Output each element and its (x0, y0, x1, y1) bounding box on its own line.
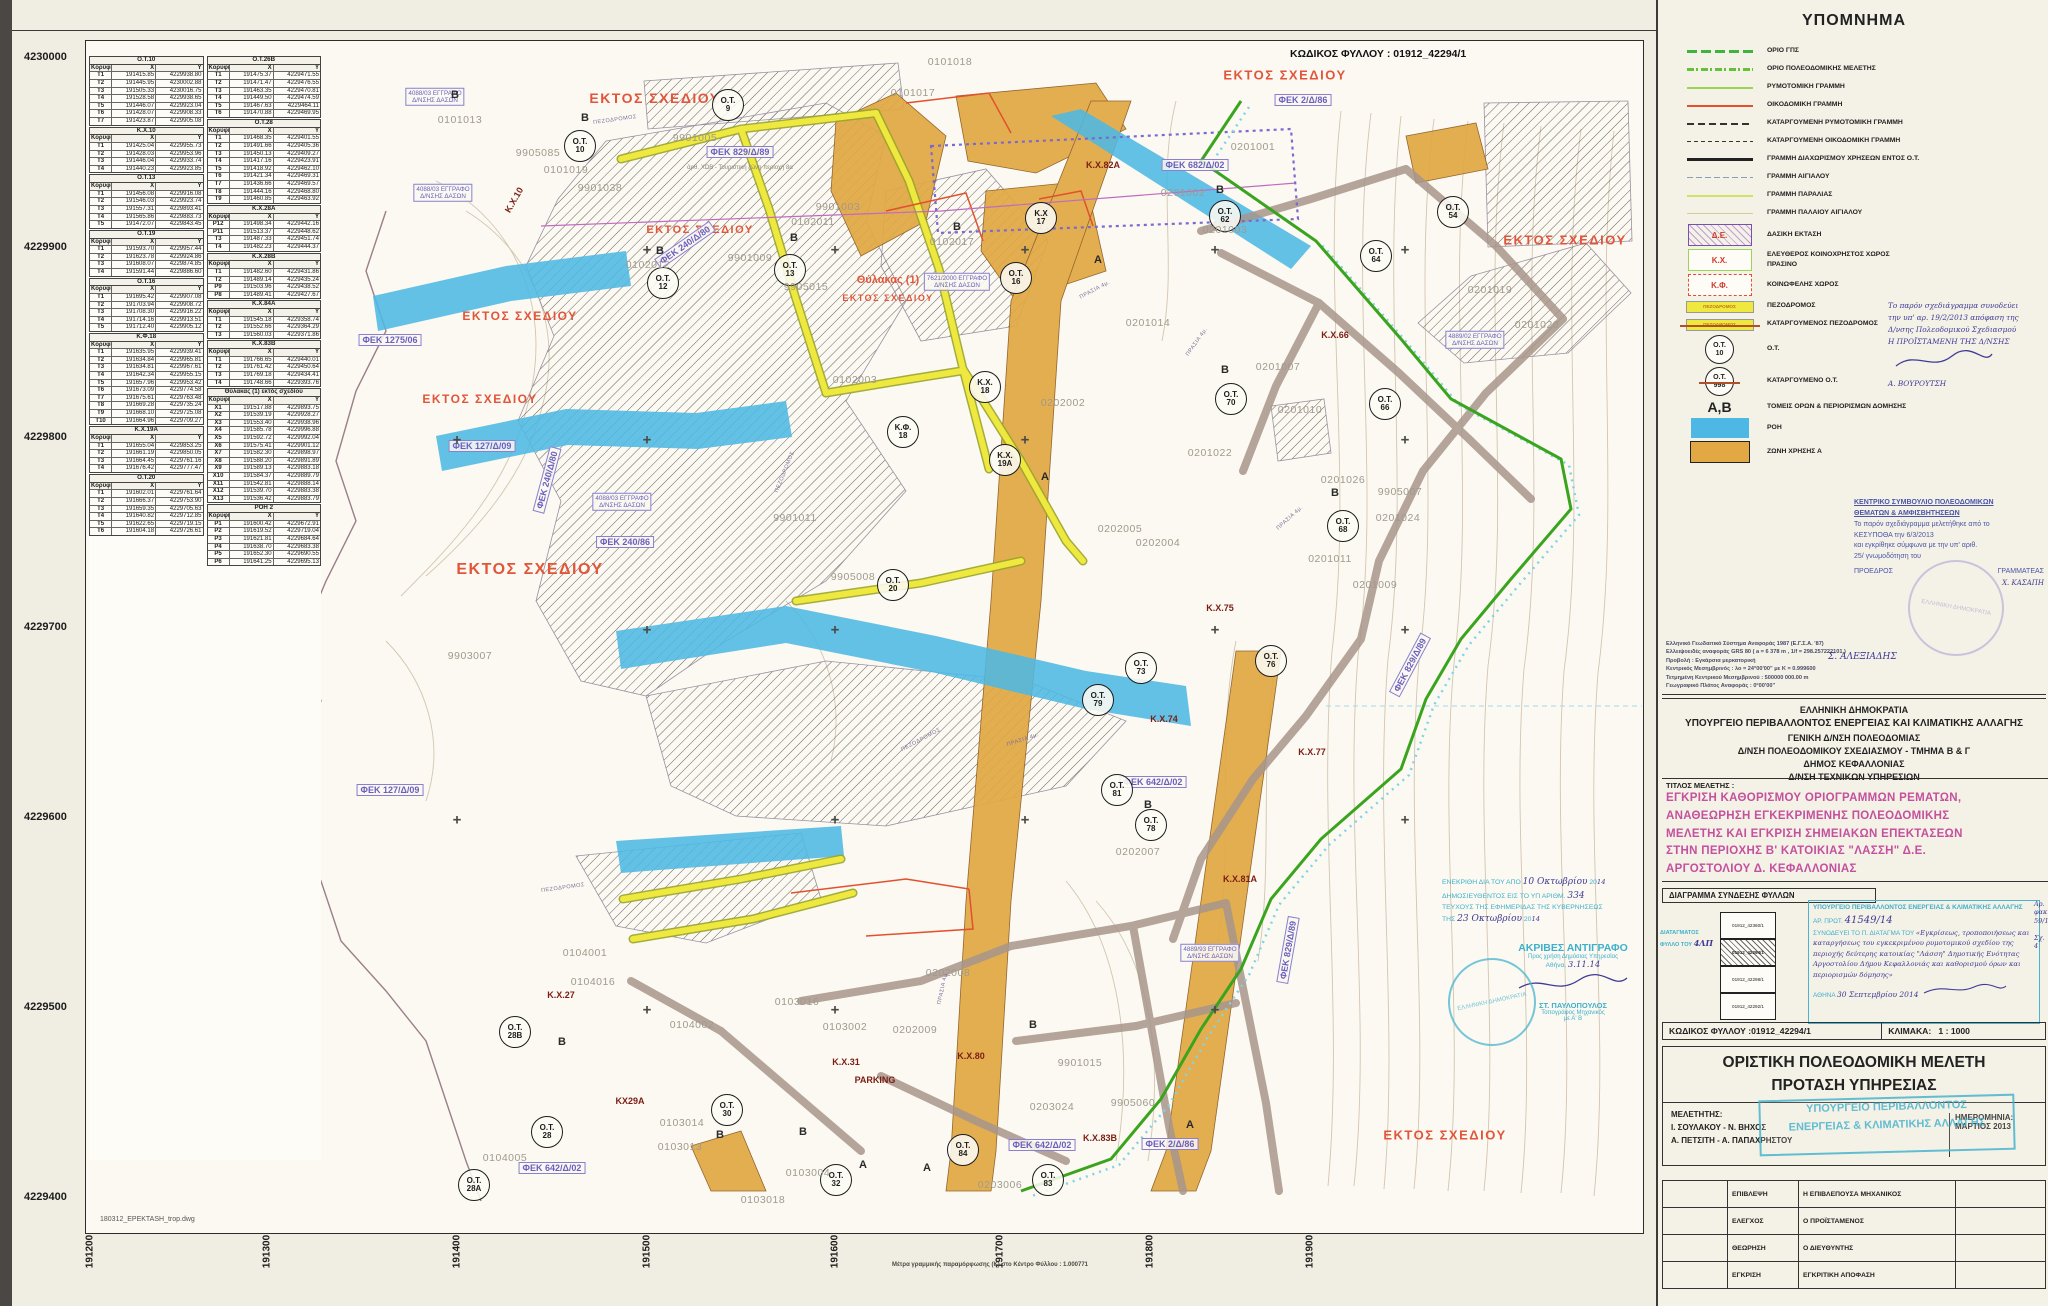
table-row: Χ12191539.704229883.38 (208, 488, 321, 496)
x-value: 191655.04 (112, 443, 156, 450)
table-group-title: Ο.Τ.16 (90, 279, 203, 287)
y-value: 4229908.33 (156, 110, 202, 117)
grid-cross: + (453, 812, 462, 829)
sheet-code-row: ΚΩΔΙΚΟΣ ΦΥΛΛΟΥ :01912_42294/1 ΚΛΙΜΑΚΑ: 1… (1662, 1022, 2046, 1040)
approval-signature-cell (1956, 1235, 2045, 1261)
col-vertex: Κορυφή (90, 135, 112, 142)
designers-label: ΜΕΛΕΤΗΤΗΣ: (1671, 1110, 1722, 1119)
table-row: Τ4191640.824229712.85 (90, 513, 203, 521)
table-header-row: ΚορυφήXY (208, 261, 321, 269)
y-value: 4229763.48 (156, 395, 202, 402)
block-number-badge: Ο.Τ.16 (1000, 262, 1032, 294)
vertex-id: Τ2 (208, 277, 230, 284)
grid-cross: + (1021, 432, 1030, 449)
legend-label: ΓΡΑΜΜΗ ΠΑΡΑΛΙΑΣ (1767, 190, 1832, 200)
divider-2 (1662, 698, 2046, 699)
fek-reference-label: ΦΕΚ 2/Δ/86 (1142, 1138, 1199, 1150)
legend-item: ΟΡΙΟ ΓΠΣ (1672, 44, 2042, 59)
y-value: 4229469.31 (274, 173, 320, 180)
x-value: 191664.96 (112, 418, 156, 425)
margin-notes: Αρ. φακ. 59/14 Σχ. 4 (2034, 900, 2048, 951)
scanned-planning-sheet: { "sheet": { "kodikos_top": "ΚΩΔΙΚΟΣ ΦΥΛ… (0, 0, 2048, 1306)
x-value: 191761.42 (230, 364, 274, 371)
col-y: Y (156, 183, 202, 190)
handwritten-note-directorate: Το παρόν σχεδιάγραμμα συνοδεύειτην υπ' α… (1888, 300, 2048, 390)
col-x: X (112, 183, 156, 190)
block-number: 17 (1037, 218, 1046, 226)
table-group-title: Ο.Τ.26Β (208, 57, 321, 65)
table-row: Τ2191445.954230002.88 (90, 80, 203, 88)
vertex-id: Τ5 (208, 103, 230, 110)
building-sector-letter: Α (859, 1159, 867, 1171)
agency-line: ΥΠΟΥΡΓΕΙΟ ΠΕΡΙΒΑΛΛΟΝΤΟΣ ΕΝΕΡΓΕΙΑΣ ΚΑΙ ΚΛ… (1662, 717, 2046, 732)
y-value: 4229409.27 (274, 151, 320, 158)
vertex-id: Τ10 (90, 418, 112, 425)
y-value: 4229924.86 (156, 254, 202, 261)
council-secretary: ΓΡΑΜΜΑΤΕΑΣ (1998, 567, 2044, 578)
y-value: 4229672.91 (274, 521, 320, 528)
vertex-id: Ρ5 (208, 551, 230, 558)
vertex-id: Τ1 (208, 357, 230, 364)
table-group-title: Κ.Χ.10 (90, 128, 203, 136)
x-value: 191468.35 (230, 135, 274, 142)
col-y: Y (274, 397, 320, 404)
y-value: 4229967.61 (156, 364, 202, 371)
table-group-title: Κ.Χ.19Α (90, 427, 203, 435)
table-row: Τ7191423.874229905.08 (90, 118, 203, 125)
col-x: X (112, 286, 156, 293)
parcel-number: 0201022 (1188, 447, 1232, 459)
map-label-ektos-sxediou: ΕΚΤΟΣ ΣΧΕΔΙΟΥ (842, 293, 933, 303)
study-title-line: ΑΝΑΘΕΩΡΗΣΗ ΕΓΚΕΚΡΙΜΕΝΗΣ ΠΟΛΕΟΔΟΜΙΚΗΣ (1666, 808, 2048, 826)
x-value: 191748.66 (230, 380, 274, 387)
coordinate-table-group: Ο.Τ.26ΒΚορυφήXYΤ1191475.374229471.55Τ219… (207, 56, 322, 118)
x-value: 191604.18 (112, 528, 156, 535)
building-sector-letter: Α (1041, 471, 1049, 483)
block-number-badge: Ο.Τ.28Α (458, 1169, 490, 1201)
col-vertex: Κορυφή (208, 128, 230, 135)
sectors-ab-symbol: Α,Β (1707, 399, 1731, 415)
table-row: Τ2191489.144229435.24 (208, 277, 321, 285)
col-x: X (230, 309, 274, 316)
vertex-id: Τ2 (208, 324, 230, 331)
legend-swatch (1672, 141, 1767, 143)
stamp-hw-date: 30 Σεπτεμβρίου 2014 (1837, 990, 1918, 999)
x-value: 191708.30 (112, 309, 156, 316)
table-row: Τ4191482.234229444.37 (208, 244, 321, 251)
study-title-line: ΕΓΚΡΙΣΗ ΚΑΘΟΡΙΣΜΟΥ ΟΡΙΟΓΡΑΜΜΩΝ ΡΕΜΑΤΩΝ, (1666, 790, 2048, 808)
x-value: 191602.01 (112, 490, 156, 497)
table-row: Τ3191463.354229470.81 (208, 88, 321, 96)
easting-label: 191300 (262, 1235, 273, 1268)
block-number: 66 (1381, 404, 1390, 412)
table-row: Τ1191475.374229471.55 (208, 72, 321, 80)
parcel-number: 0201019 (1468, 284, 1512, 296)
building-sector-letter: Β (790, 232, 798, 244)
y-value: 4229939.41 (156, 349, 202, 356)
x-value: 191634.81 (112, 364, 156, 371)
table-group-title: Ο.Τ.13 (90, 175, 203, 183)
agency-line: Δ/ΝΣΗ ΠΟΛΕΟΔΟΜΙΚΟΥ ΣΧΕΔΙΑΣΜΟΥ - ΤΜΗΜΑ Β … (1662, 745, 2046, 758)
coordinate-table-group: Κ.Φ.18ΚορυφήXYΤ1191635.954229939.41Τ2191… (89, 333, 204, 425)
table-group-title: Ο.Τ.20 (90, 475, 203, 483)
x-value: 191445.95 (112, 80, 156, 87)
approval-role: ΕΓΚΡΙΤΙΚΗ ΑΠΟΦΑΣΗ (1799, 1262, 1956, 1288)
legend-label: Ο.Τ. (1767, 344, 1779, 354)
x-value: 191714.16 (112, 317, 156, 324)
legend-label: ΓΡΑΜΜΗ ΠΑΛΑΙΟΥ ΑΙΓΙΑΛΟΥ (1767, 208, 1862, 218)
legend-item: ΚΑΤΑΡΓΟΥΜΕΝΗ ΡΥΜΟΤΟΜΙΚΗ ΓΡΑΜΜΗ (1672, 116, 2042, 131)
legend-item: ΓΡΑΜΜΗ ΠΑΡΑΛΙΑΣ (1672, 188, 2042, 203)
y-value: 4229401.55 (274, 135, 320, 142)
table-row: Τ3191487.334229451.74 (208, 236, 321, 244)
table-group-title: Ο.Τ.10 (90, 57, 203, 65)
y-value: 4229725.08 (156, 410, 202, 417)
building-sector-letter: Β (1144, 799, 1152, 811)
geodetic-line: Τετμημένη Κεντρικού Μεσημβρινού : 500000… (1666, 674, 1881, 682)
y-value: 4229953.96 (156, 151, 202, 158)
block-number: 54 (1449, 212, 1458, 220)
y-value: 4229712.85 (156, 513, 202, 520)
vertex-id: Τ3 (208, 372, 230, 379)
road-annotation: ΠΡΑΣΙΑ 4μ. (1006, 732, 1040, 748)
vertex-id: Ρ3 (208, 536, 230, 543)
y-value: 4229427.67 (274, 292, 320, 299)
legend-label: ΚΑΤΑΡΓΟΥΜΕΝΗ ΡΥΜΟΤΟΜΙΚΗ ΓΡΑΜΜΗ (1767, 118, 1903, 128)
designers-box: ΜΕΛΕΤΗΤΗΣ: Ι. ΣΟΥΛΑΚΟΥ - Ν. ΒΗΧΟΣ Α. ΠΕΤ… (1662, 1102, 2046, 1166)
parcel-number: 0101019 (544, 164, 588, 176)
table-row: Ρ9191503.964229438.52 (208, 284, 321, 292)
table-row: Ρ5191652.304229690.55 (208, 551, 321, 559)
y-value: 4229761.64 (156, 490, 202, 497)
sheet-index-box: 01912_42292/1 (1720, 993, 1776, 1020)
coordinate-tables: Ο.Τ.10ΚορυφήXYΤ1191415.854229938.80Τ2191… (89, 56, 321, 1160)
legend-swatch: Δ.Ε. (1672, 224, 1767, 246)
block-number: 32 (832, 1180, 841, 1188)
coordinate-table-group: Ο.Τ.19ΚορυφήXYΤ1191593.704229957.44Τ2191… (89, 230, 204, 277)
vertex-id: Τ1 (90, 294, 112, 301)
col-vertex: Κορυφή (208, 397, 230, 404)
legend-swatch-graphic (1687, 195, 1753, 197)
table-row: Τ1191456.084229916.08 (90, 191, 203, 199)
fek-zone-note: άρθ. ΧΩΒ - Τουριστική ζώνη περιοχή 8α (687, 165, 793, 171)
x-value: 191593.70 (112, 246, 156, 253)
grid-cross: + (1401, 622, 1410, 639)
y-value: 4229889.79 (274, 473, 320, 480)
table-group-title: Κ.Χ.83Β (208, 341, 321, 349)
table-row: Τ7191675.614229763.48 (90, 395, 203, 403)
parcel-number: 0103004 (786, 1167, 830, 1179)
y-value: 4229883.73 (156, 214, 202, 221)
legend-item: ΓΡΑΜΜΗ ΠΑΛΑΙΟΥ ΑΙΓΙΑΛΟΥ (1672, 206, 2042, 221)
vertex-id: Τ9 (90, 410, 112, 417)
parcel-number: 0201010 (1278, 404, 1322, 416)
vertex-id: Τ2 (90, 198, 112, 205)
vertex-id: Τ1 (208, 317, 230, 324)
x-value: 191619.52 (230, 528, 274, 535)
legend-item: ΡΟΗ (1672, 418, 2042, 438)
coordinate-table-group: Κ.Χ.28ΒΚορυφήXYΤ1191482.604229431.86Τ219… (207, 253, 322, 300)
table-row: Τ5191467.634229464.11 (208, 103, 321, 111)
table-row: Χ3191553.404229938.96 (208, 420, 321, 428)
table-row: Ρ6191641.254229695.13 (208, 559, 321, 566)
y-value: 4229901.12 (274, 443, 320, 450)
y-value: 4229883.79 (274, 496, 320, 503)
study-title-label: ΤΙΤΛΟΣ ΜΕΛΕΤΗΣ : (1666, 781, 2048, 790)
block-number-badge: Ο.Τ.28Β (499, 1016, 531, 1048)
building-sector-letter: Α (1186, 1119, 1194, 1131)
legend-item: ΟΙΚΟΔΟΜΙΚΗ ΓΡΑΜΜΗ (1672, 98, 2042, 113)
col-y: Y (156, 483, 202, 490)
map-label-ektos-sxediou: ΕΚΤΟΣ ΣΧΕΔΙΟΥ (1383, 1128, 1506, 1143)
y-value: 4229435.24 (274, 277, 320, 284)
title-block-panel: ΥΠΟΜΝΗΜΑ ΟΡΙΟ ΓΠΣΟΡΙΟ ΠΟΛΕΟΔΟΜΙΚΗΣ ΜΕΛΕΤ… (1656, 0, 2048, 1306)
table-row: Ρ3191621.814229684.64 (208, 536, 321, 544)
forest-document-label: 4889/93 ΕΓΓΡΑΦΟ Δ/ΝΣΗΣ ΔΑΣΩΝ (1180, 944, 1239, 962)
public-space-label: Κ.Χ.80 (957, 1051, 985, 1061)
x-value: 191769.18 (230, 372, 274, 379)
parcel-number: 0103018 (741, 1194, 785, 1206)
parcel-number: 0203024 (1030, 1101, 1074, 1113)
table-header-row: ΚορυφήXY (90, 286, 203, 294)
study-title: ΕΓΚΡΙΣΗ ΚΑΘΟΡΙΣΜΟΥ ΟΡΙΟΓΡΑΜΜΩΝ ΡΕΜΑΤΩΝ,Α… (1666, 790, 2048, 879)
gazette-line2: ΔΗΜΟΣΙΕΥΘΕΝΤΟΣ ΕΙΣ ΤΟ ΥΠ ΑΡΙΘΜ. (1442, 893, 1566, 900)
gazette-issue-no: 334 (1567, 891, 1584, 901)
public-space-label: Κ.Χ.75 (1206, 603, 1234, 613)
parcel-number: 9905085 (516, 147, 560, 159)
y-value: 4229965.81 (156, 357, 202, 364)
y-value: 4229451.74 (274, 236, 320, 243)
council-line: ΚΕΣΥΠΟΘΑ την 6/3/2013 (1854, 531, 2044, 542)
col-x: X (230, 128, 274, 135)
block-number-badge: Ο.Τ.78 (1135, 809, 1167, 841)
y-value: 4229905.08 (156, 118, 202, 125)
legend-label: ΟΡΙΟ ΓΠΣ (1767, 46, 1799, 56)
decree-note-hw: 4ΛΠ (1694, 938, 1713, 948)
table-row: Τ1191425.044229955.73 (90, 143, 203, 151)
decree-note-1: ΔΙΑΤΑΓΜΑΤΟΣ (1660, 930, 1699, 936)
y-value: 4229992.04 (274, 435, 320, 442)
block-number: 73 (1137, 668, 1146, 676)
vertex-id: Ρ12 (208, 221, 230, 228)
legend-swatch (1672, 195, 1767, 197)
vertex-id: Τ3 (90, 261, 112, 268)
map-label-ektos-sxediou: ΕΚΤΟΣ ΣΧΕΔΙΟΥ (456, 561, 603, 579)
block-number: 28 (543, 1132, 552, 1140)
approval-stage: ΕΓΚΡΙΣΗ (1728, 1262, 1799, 1288)
legend-label: ΔΑΣΙΚΗ ΕΚΤΑΣΗ (1767, 230, 1821, 240)
col-y: Y (156, 342, 202, 349)
road-annotation: ΠΕΖΟΔΡΟΜΟΣ (593, 114, 637, 126)
y-value: 4229450.64 (274, 364, 320, 371)
ministry-protocol-stamp: ΥΠΟΥΡΓΕΙΟ ΠΕΡΙΒΑΛΛΟΝΤΟΣ ΕΝΕΡΓΕΙΑΣ & ΚΛΙΜ… (1808, 900, 2040, 1024)
legend-label: ΚΑΤΑΡΓΟΥΜΕΝΟΣ ΠΕΖΟΔΡΟΜΟΣ (1767, 319, 1878, 329)
x-value: 191668.10 (112, 410, 156, 417)
table-row: Τ2191634.844229965.81 (90, 357, 203, 365)
col-y: Y (274, 128, 320, 135)
agency-line: ΕΛΛΗΝΙΚΗ ΔΗΜΟΚΡΑΤΙΑ (1662, 704, 2046, 717)
vertex-id: Τ2 (208, 80, 230, 87)
struck-wrapper: Ο.Τ. 998 (1705, 367, 1734, 396)
block-number: 18 (899, 432, 908, 440)
y-value: 4229905.12 (156, 324, 202, 331)
y-value: 4229883.18 (274, 465, 320, 472)
sheet-code: ΚΩΔΙΚΟΣ ΦΥΛΛΟΥ :01912_42294/1 (1663, 1023, 1882, 1039)
parcel-number: 0101013 (438, 114, 482, 126)
building-sector-letter: Β (451, 89, 459, 101)
approval-signature-cell (1956, 1181, 2045, 1207)
legend-item: Α,ΒΤΟΜΕΙΣ ΟΡΩΝ & ΠΕΡΙΟΡΙΣΜΩΝ ΔΟΜΗΣΗΣ (1672, 399, 2042, 415)
x-value: 191669.28 (112, 402, 156, 409)
y-value: 4229938.80 (156, 72, 202, 79)
geodetic-line: Κεντρικός Μεσημβρινός : λο = 24°00'00" μ… (1666, 665, 1881, 673)
approval-stage: ΕΛΕΓΧΟΣ (1728, 1208, 1799, 1234)
table-row: Χ6191575.414229901.12 (208, 443, 321, 451)
col-y: Y (274, 65, 320, 72)
public-space-label: Κ.Χ.10 (503, 186, 525, 215)
col-x: X (112, 65, 156, 72)
fek-reference-label: ΦΕΚ 240/86 (596, 536, 654, 548)
vertex-id: Τ7 (208, 181, 230, 188)
table-row: Τ1191468.354229401.55 (208, 135, 321, 143)
vertex-id: Χ9 (208, 465, 230, 472)
col-vertex: Κορυφή (90, 286, 112, 293)
vertex-id: Τ1 (90, 443, 112, 450)
coordinate-table-group: Κ.Χ.10ΚορυφήXYΤ1191425.044229955.73Τ2191… (89, 127, 204, 174)
note-line: την υπ' αρ. 19/2/2013 απόφαση της (1888, 312, 2048, 324)
building-sector-letter: Β (1216, 184, 1224, 196)
coordinate-table-group: Ο.Τ.13ΚορυφήXYΤ1191456.084229916.08Τ2191… (89, 174, 204, 228)
x-value: 191456.08 (112, 191, 156, 198)
table-row: Χ5191592.724229992.04 (208, 435, 321, 443)
col-y: Y (274, 261, 320, 268)
legend-label: ΟΡΙΟ ΠΟΛΕΟΔΟΜΙΚΗΣ ΜΕΛΕΤΗΣ (1767, 64, 1876, 74)
table-header-row: ΚορυφήXY (208, 397, 321, 405)
col-y: Y (156, 239, 202, 246)
vertex-id: Χ4 (208, 427, 230, 434)
approval-role: Η ΕΠΙΒΛΕΠΟΥΣΑ ΜΗΧΑΝΙΚΟΣ (1799, 1181, 1956, 1207)
y-value: 4229470.81 (274, 88, 320, 95)
legend-swatch (1672, 68, 1767, 71)
ministry-stamp-l1: ΥΠΟΥΡΓΕΙΟ ΠΕΡΙΒΑΛΛΟΝΤΟΣ (1813, 904, 1907, 911)
legend-label: ΓΡΑΜΜΗ ΑΙΓΙΑΛΟΥ (1767, 172, 1830, 182)
x-value: 191661.19 (112, 450, 156, 457)
vertex-id: Τ2 (90, 357, 112, 364)
table-row: Τ6191470.884229469.95 (208, 110, 321, 117)
public-space-label: Κ.Χ.66 (1321, 330, 1349, 340)
coordinate-table-group: Κ.Χ.84ΑΚορυφήXYΤ1191545.184229358.74Τ219… (207, 300, 322, 339)
x-value: 191588.20 (230, 458, 274, 465)
legend-swatch (1672, 441, 1767, 463)
vertex-id: Χ1 (208, 405, 230, 412)
table-group-title: Θύλακας (1) εκτός σχεδίου (208, 389, 321, 397)
x-value: 191666.37 (112, 498, 156, 505)
x-value: 191491.66 (230, 143, 274, 150)
y-value: 4229444.37 (274, 244, 320, 251)
col-x: X (230, 513, 274, 520)
building-sector-letter: Α (923, 1162, 931, 1174)
building-sector-letter: Β (581, 112, 589, 124)
x-value: 191766.65 (230, 357, 274, 364)
table-row: Τ4191748.664229393.76 (208, 380, 321, 387)
x-value: 191446.04 (112, 158, 156, 165)
vertex-id: Χ3 (208, 420, 230, 427)
council-line: Το παρόν σχεδιάγραμμα μελετήθηκε από το (1854, 520, 2044, 531)
building-sector-letter: Β (558, 1036, 566, 1048)
grid-cross: + (453, 432, 462, 449)
table-row: Τ1191482.604229431.86 (208, 269, 321, 277)
parcel-number: 9901009 (728, 252, 772, 264)
forest-document-label: 7621/2000 ΕΓΓΡΑΦΟ Δ/ΝΣΗΣ ΔΑΣΩΝ (924, 273, 990, 291)
table-row: Χ4191585.784229996.88 (208, 427, 321, 435)
vertex-id: Τ3 (90, 309, 112, 316)
col-x: X (112, 483, 156, 490)
approval-role: Ο ΔΙΕΥΘΥΝΤΗΣ (1799, 1235, 1956, 1261)
block-number-badge: Ο.Τ.70 (1215, 383, 1247, 415)
road-annotation: ΠΡΑΣΙΑ 4μ. (1079, 279, 1111, 300)
designer-line-1: Ι. ΣΟΥΛΑΚΟΥ - Ν. ΒΗΧΟΣ (1671, 1123, 1766, 1132)
legend-swatch-graphic (1687, 213, 1753, 215)
x-value: 191676.42 (112, 465, 156, 472)
parcel-number: 0102012 (626, 259, 670, 271)
vertex-id: Τ4 (208, 95, 230, 102)
grid-cross: + (1021, 242, 1030, 259)
building-sector-letter: Α (1094, 254, 1102, 266)
agency-line: ΓΕΝΙΚΗ Δ/ΝΣΗ ΠΟΛΕΟΔΟΜΙΑΣ (1662, 732, 2046, 745)
block-number-badge: Ο.Τ.83 (1032, 1164, 1064, 1196)
parcel-number: 0102003 (833, 374, 877, 386)
y-value: 4229442.16 (274, 221, 320, 228)
y-value: 4229923.85 (156, 166, 202, 173)
block-number-badge: Ο.Τ.79 (1082, 684, 1114, 716)
x-value: 191557.31 (112, 206, 156, 213)
y-value: 4229898.97 (274, 450, 320, 457)
table-row: Τ4191591.444229886.60 (90, 269, 203, 276)
table-header-row: ΚορυφήXY (208, 128, 321, 136)
vertex-id: Τ5 (208, 166, 230, 173)
block-number-badge: Ο.Τ.66 (1369, 388, 1401, 420)
legend-label: ΡΥΜΟΤΟΜΙΚΗ ΓΡΑΜΜΗ (1767, 82, 1845, 92)
legend-swatch: ΠΕΖΟΔΡΟΜΟΣ (1672, 301, 1767, 313)
parcel-number: 0103016 (775, 996, 819, 1008)
vertex-id: Ρ6 (208, 559, 230, 566)
road-annotation: ΠΕΖΟΔΡΟΜΟΣ (900, 727, 942, 753)
y-value: 4229843.45 (156, 221, 202, 228)
parcel-number: 0101018 (928, 56, 972, 68)
x-value: 191482.23 (230, 244, 274, 251)
table-row: Χ2191539.194229928.27 (208, 412, 321, 420)
block-number-badge: Ο.Τ.76 (1255, 645, 1287, 677)
parcel-number: 0201011 (1308, 553, 1352, 565)
vertex-id: Τ2 (208, 143, 230, 150)
parcel-number: 0103014 (660, 1117, 704, 1129)
table-row: Τ4191449.504229474.59 (208, 95, 321, 103)
col-y: Y (274, 214, 320, 221)
table-row: Τ8191669.284229735.24 (90, 402, 203, 410)
x-value: 191591.44 (112, 269, 156, 276)
council-line: και εγκρίθηκε σύμφωνα με την υπ' αριθ. (1854, 541, 2044, 552)
col-y: Y (156, 135, 202, 142)
y-value: 4229684.64 (274, 536, 320, 543)
legend-label: ΟΙΚΟΔΟΜΙΚΗ ΓΡΑΜΜΗ (1767, 100, 1842, 110)
block-number-badge: Κ.Φ.18 (887, 416, 919, 448)
x-value: 191487.33 (230, 236, 274, 243)
legend-swatch (1672, 177, 1767, 179)
study-title-line: ΣΤΗΝ ΠΕΡΙΟΧΗΣ Β' ΚΑΤΟΙΚΙΑΣ "ΛΑΣΣΗ" Δ.Ε. (1666, 843, 2048, 861)
y-value: 4229683.38 (274, 544, 320, 551)
x-value: 191513.37 (230, 229, 274, 236)
y-value: 4229938.96 (274, 420, 320, 427)
